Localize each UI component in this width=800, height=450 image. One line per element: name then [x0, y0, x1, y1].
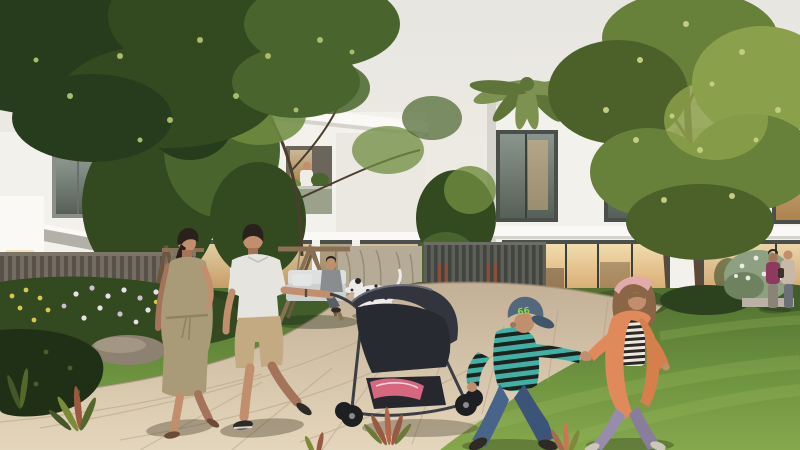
- boy-ear: [510, 322, 516, 328]
- man-leg: [244, 368, 250, 417]
- boy-striped-shirt: [493, 328, 539, 391]
- balcony-person: [300, 170, 313, 187]
- sneaker-sole: [234, 427, 252, 428]
- balcony-plant: [311, 173, 329, 187]
- cap-badge-text: 66: [517, 306, 531, 318]
- boy-fist: [467, 382, 477, 392]
- stroller-seat: [356, 304, 450, 373]
- right-villa-upper-window-1: [496, 130, 558, 222]
- girl-hand: [584, 353, 592, 361]
- balcony-person-head: [303, 162, 311, 170]
- community-rendering: 66: [0, 0, 800, 450]
- swing-pillow: [292, 274, 312, 286]
- scene-canvas: 66: [0, 0, 800, 450]
- man-arm-on-stroller: [284, 290, 331, 295]
- handbag: [778, 268, 784, 278]
